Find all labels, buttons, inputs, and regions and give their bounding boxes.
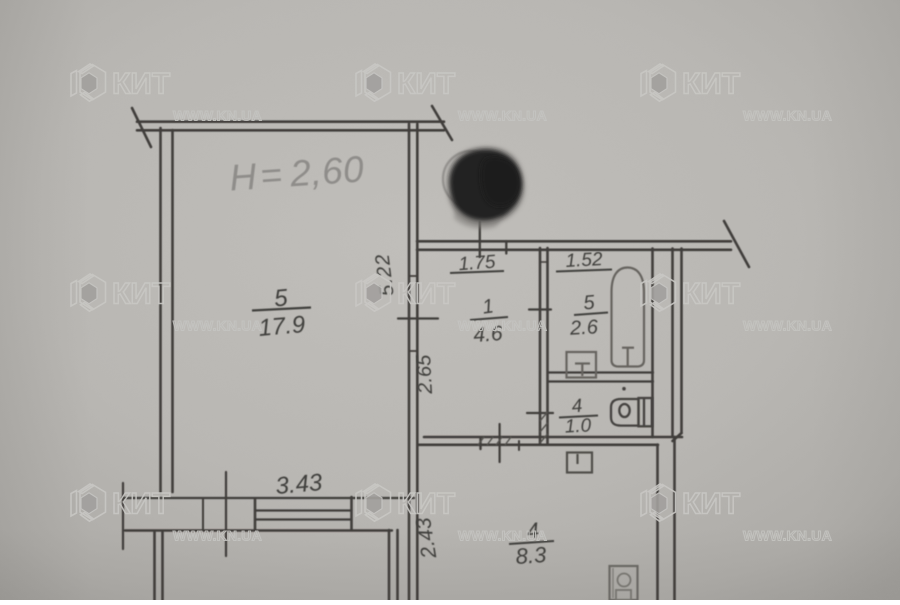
svg-text:2.6: 2.6 bbox=[569, 316, 600, 340]
svg-text:1.0: 1.0 bbox=[564, 415, 592, 437]
svg-text:1.52: 1.52 bbox=[565, 249, 603, 272]
svg-text:4: 4 bbox=[571, 396, 583, 418]
svg-text:2.65: 2.65 bbox=[413, 353, 437, 395]
svg-text:3.43: 3.43 bbox=[274, 469, 324, 500]
svg-text:17.9: 17.9 bbox=[257, 311, 306, 342]
svg-text:8.3: 8.3 bbox=[515, 542, 548, 569]
